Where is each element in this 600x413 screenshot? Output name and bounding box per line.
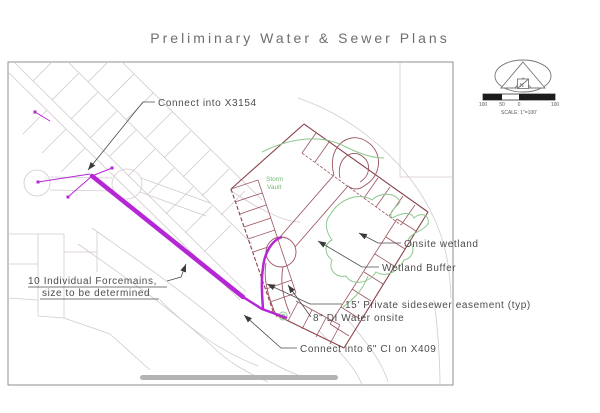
label-sidesewer-easement: 15' Private sidesewer easement (typ) bbox=[345, 300, 531, 311]
label-forcemains-line1: 10 Individual Forcemains, bbox=[28, 276, 157, 287]
map-frame bbox=[8, 62, 453, 385]
storm-vault-label-line1: Storm bbox=[266, 176, 283, 183]
north-arrow-label: N bbox=[520, 83, 524, 89]
label-connect-x3154: Connect into X3154 bbox=[158, 98, 257, 109]
scale-label-0: 0 bbox=[518, 102, 521, 108]
scale-label-100-left: 100 bbox=[479, 102, 488, 108]
page-title: Preliminary Water & Sewer Plans bbox=[0, 30, 600, 46]
label-di-water: 8" DI Water onsite bbox=[313, 313, 404, 324]
label-connect-x409: Connect into 6" CI on X409 bbox=[300, 344, 436, 355]
plan-sheet: Preliminary Water & Sewer Plans bbox=[0, 0, 600, 413]
storm-vault-label-line2: Vault bbox=[267, 184, 282, 191]
road-bar bbox=[140, 375, 338, 380]
plan-drawing: Storm Vault Connec bbox=[0, 0, 600, 413]
scale-bar: 100 50 0 100 SCALE: 1"=100' bbox=[479, 94, 560, 116]
label-onsite-wetland: Onsite wetland bbox=[404, 239, 479, 250]
scale-label-100-right: 100 bbox=[551, 102, 560, 108]
label-wetland-buffer: Wetland Buffer bbox=[382, 263, 456, 274]
scale-caption: SCALE: 1"=100' bbox=[501, 110, 537, 116]
scale-label-50: 50 bbox=[499, 102, 505, 108]
label-forcemains-line2: size to be determined bbox=[42, 288, 150, 299]
